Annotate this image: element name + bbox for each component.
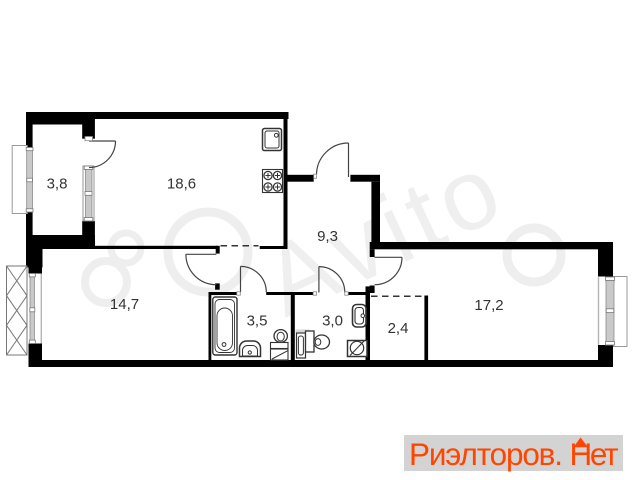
svg-text:9,3: 9,3 (317, 228, 338, 245)
svg-text:17,2: 17,2 (474, 297, 503, 314)
svg-text:Нет: Нет (570, 436, 619, 472)
svg-text:2,4: 2,4 (388, 320, 409, 337)
svg-text:Риэлторов.: Риэлторов. (409, 436, 563, 472)
svg-text:3,5: 3,5 (247, 313, 268, 330)
svg-text:18,6: 18,6 (167, 176, 196, 193)
svg-text:3,0: 3,0 (322, 313, 343, 330)
svg-text:14,7: 14,7 (110, 296, 139, 313)
svg-text:3,8: 3,8 (47, 176, 68, 193)
